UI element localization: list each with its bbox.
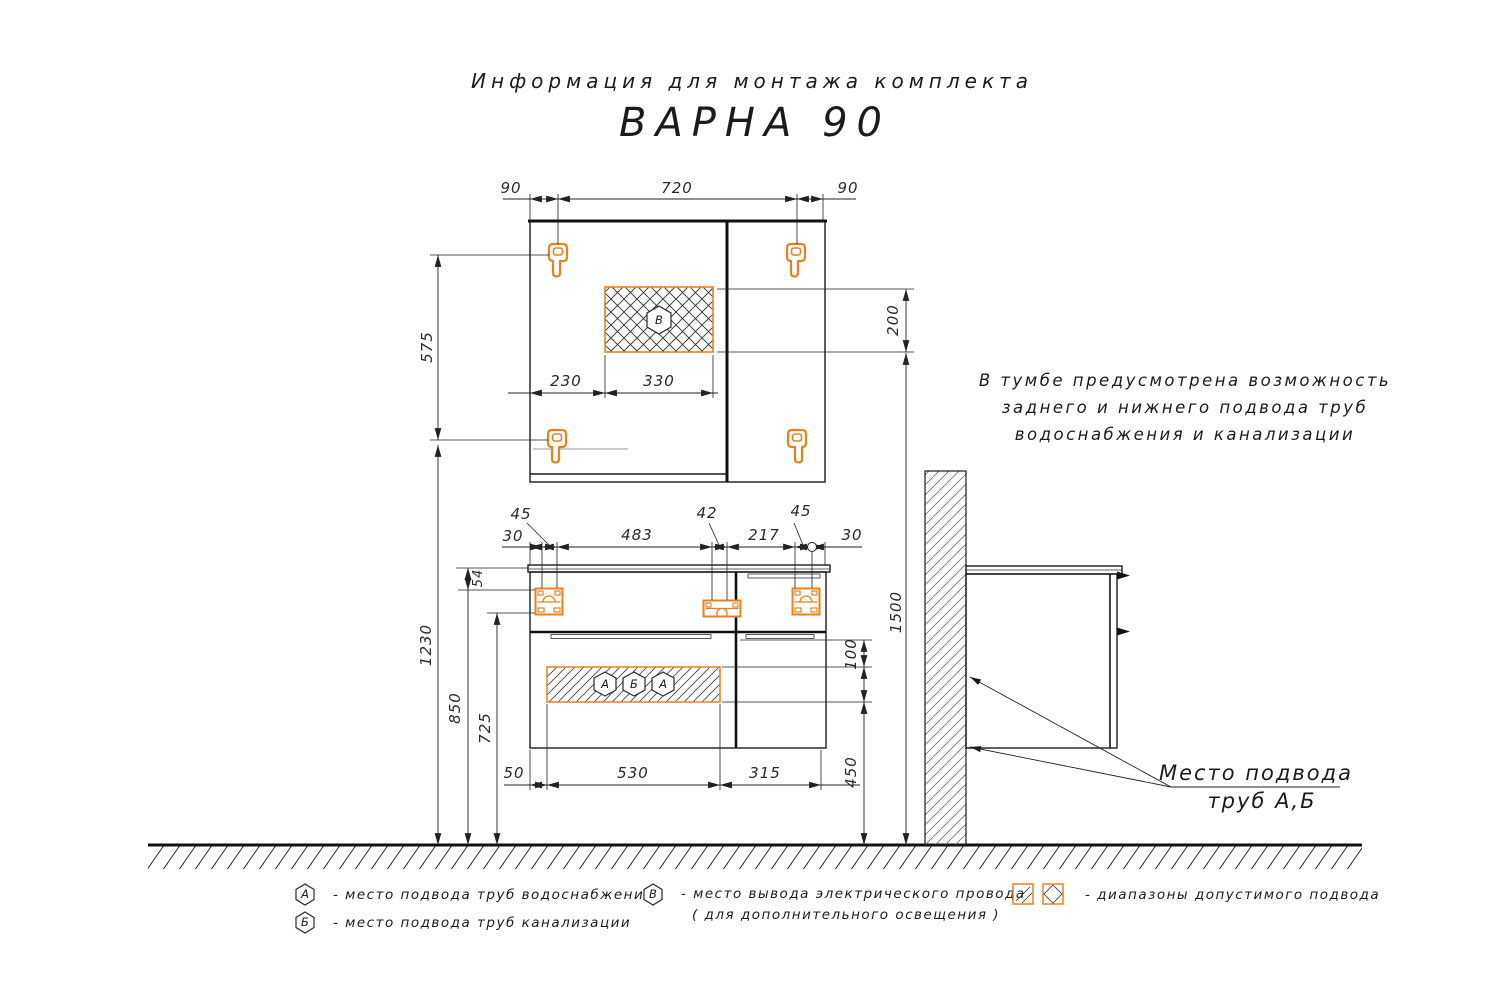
mirror-hook-top-right [787, 244, 805, 277]
note-block: В тумбе предусмотрена возможность заднег… [979, 371, 1391, 444]
dim-575: 575 [418, 331, 436, 363]
dim-54: 54 [471, 569, 486, 588]
dim-720: 720 [661, 179, 693, 197]
installation-drawing: Информация для монтажа комплекта ВАРНА 9… [0, 0, 1500, 1000]
mount-point-circle [808, 543, 817, 552]
dim-315: 315 [749, 764, 781, 782]
dim-850: 850 [446, 692, 464, 724]
note-line-3: водоснабжения и канализации [1015, 425, 1355, 444]
legend-ranges-text: - диапазоны допустимого подвода [1085, 887, 1380, 903]
dim-90-right: 90 [837, 179, 858, 197]
note-line-1: В тумбе предусмотрена возможность [979, 371, 1391, 390]
dim-42: 42 [696, 504, 717, 522]
dim-30-right: 30 [841, 526, 862, 544]
dim-mirror-top: 90 720 90 [500, 179, 858, 244]
legend-v-text-2: ( для дополнительного освещения ) [692, 907, 1000, 923]
dim-530: 530 [617, 764, 649, 782]
dim-1230: 1230 [417, 624, 435, 666]
dim-45-left: 45 [510, 505, 531, 523]
dim-725: 725 [476, 712, 494, 744]
legend-v-text: - место вывода электрического провода [681, 886, 1026, 902]
dim-1500: 1500 [887, 591, 905, 633]
countertop [528, 565, 830, 572]
floor-hatch [148, 846, 1362, 869]
vanity-bracket-middle [704, 601, 741, 617]
legend-a-text: - место подвода труб водоснабжения [333, 887, 654, 903]
dim-45-right: 45 [790, 502, 811, 520]
product-title: ВАРНА 90 [619, 100, 891, 146]
marker-v-label: В [655, 313, 663, 327]
note-line-2: заднего и нижнего подвода труб [1002, 398, 1368, 417]
hinge-mark-top [1117, 572, 1130, 580]
legend-hex-b-label: Б [301, 915, 309, 929]
mirror-hook-top-left [549, 244, 567, 277]
mirror-hook-bottom-right [788, 430, 806, 463]
legend: А - место подвода труб водоснабжения Б -… [296, 884, 1380, 933]
legend-hex-v-label: В [649, 887, 657, 901]
dim-483: 483 [621, 526, 653, 544]
legend-b-text: - место подвода труб канализации [333, 915, 631, 931]
door-panel [1110, 574, 1117, 748]
hinge-mark-bottom [1117, 628, 1130, 636]
legend-hex-a-label: А [300, 887, 309, 901]
callout-line-1: Место подвода [1159, 761, 1353, 785]
dim-50: 50 [503, 764, 524, 782]
legend-swatch-cross [1043, 884, 1063, 904]
vanity-side-view [966, 566, 1130, 748]
floor-section [148, 845, 1362, 869]
dim-330: 330 [643, 372, 675, 390]
vanity-front: А Б А [528, 565, 830, 748]
dim-450: 450 [842, 756, 860, 788]
dim-vanity-heights: 54 850 725 [446, 568, 535, 845]
dim-230: 230 [550, 372, 582, 390]
wall-section [925, 471, 966, 845]
vanity-box [530, 572, 826, 748]
mirror-cabinet-front: В [528, 221, 827, 482]
mirror-hook-bottom-left [548, 430, 566, 463]
pipe-zone: А Б А [547, 667, 720, 702]
marker-a1-label: А [600, 677, 609, 691]
marker-a2-label: А [658, 677, 667, 691]
vanity-bracket-right [793, 589, 820, 615]
dim-bracket-line: 30 45 483 42 217 45 30 [502, 502, 863, 600]
dim-30-left: 30 [502, 527, 523, 545]
dim-90-left: 90 [500, 179, 521, 197]
drawing-subtitle: Информация для монтажа комплекта [471, 69, 1033, 93]
pipe-callout: Место подвода труб А,Б [970, 677, 1353, 813]
vanity-bracket-left [536, 589, 563, 615]
electric-zone: В [605, 287, 713, 352]
dim-100: 100 [842, 638, 860, 670]
dim-217: 217 [748, 526, 780, 544]
dim-200: 200 [884, 304, 902, 336]
marker-b-label: Б [630, 677, 638, 691]
dim-left-column: 575 1230 [417, 255, 549, 845]
callout-line-2: труб А,Б [1207, 789, 1316, 813]
drawing-canvas: Информация для монтажа комплекта ВАРНА 9… [0, 0, 1500, 1000]
